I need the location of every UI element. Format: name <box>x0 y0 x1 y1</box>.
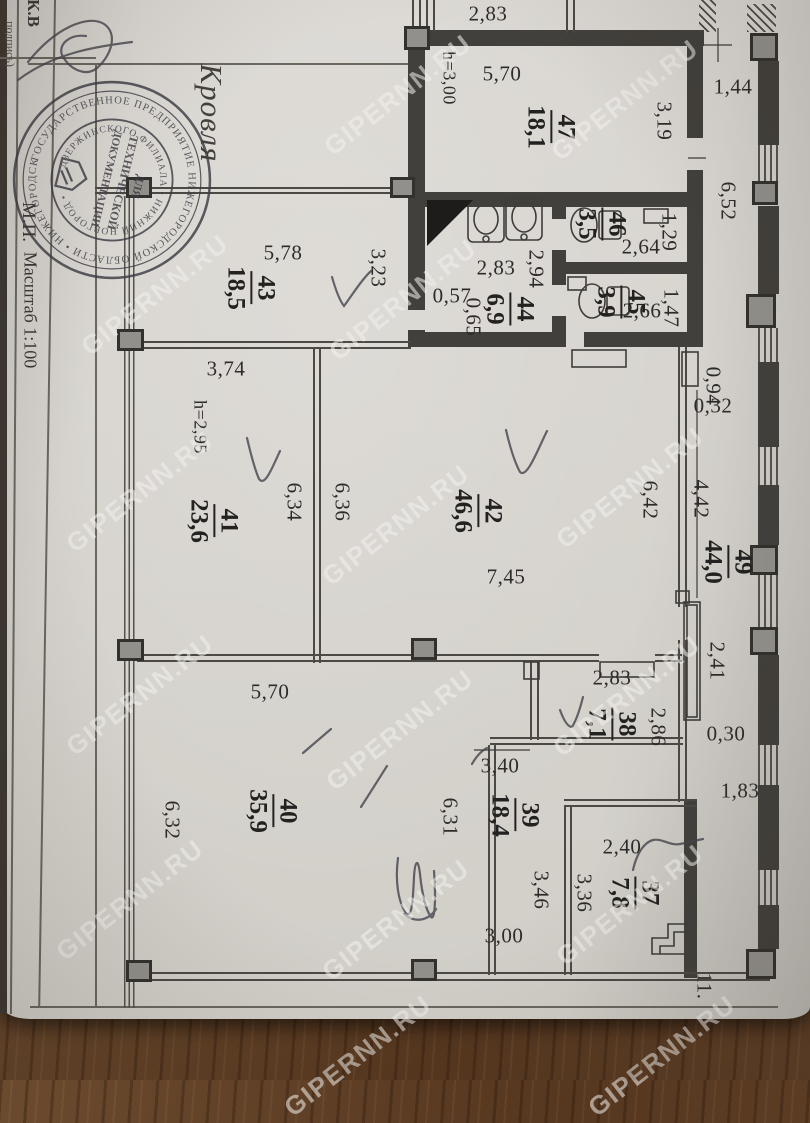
dimension-label: 3,36 <box>572 874 597 913</box>
dimension-label: 6,52 <box>716 182 741 221</box>
scale-label: Масштаб 1:100 <box>20 252 41 369</box>
room-label-46: 463,5 <box>572 208 631 241</box>
room-area: 35,9 <box>243 789 273 833</box>
dimension-label: 2,94 <box>524 250 549 289</box>
dimension-label: 3,19 <box>652 102 677 141</box>
room-area: 3,9 <box>591 286 621 317</box>
wall <box>552 262 703 274</box>
exterior-wall <box>758 785 779 870</box>
partition-wall <box>678 347 687 607</box>
wall <box>552 316 566 347</box>
dimension-label: 6,34 <box>282 483 307 522</box>
room-number: 49 <box>727 546 756 579</box>
underlying-page-edge <box>0 0 7 1014</box>
wall <box>684 800 697 978</box>
room-label-41: 4123,6 <box>184 499 243 543</box>
window <box>758 575 779 627</box>
wall <box>584 332 703 347</box>
column <box>411 638 437 660</box>
dimension-label: 4,42 <box>689 480 714 519</box>
column <box>404 26 430 50</box>
dimension-label: 2,86 <box>646 708 671 747</box>
photo-of-floor-plan-document: { "form": { "kv": "К.В", "signature_capt… <box>0 0 810 1080</box>
dimension-label: 6,36 <box>330 483 355 522</box>
dimension-label: 2,83 <box>469 2 508 27</box>
exterior-wall <box>758 206 779 294</box>
window <box>758 447 779 485</box>
dimension-label: 0,32 <box>694 394 733 419</box>
room-label-43: 4318,5 <box>221 266 280 310</box>
dimension-label: 7,45 <box>487 565 526 590</box>
signature-caption: подпись) <box>3 21 18 67</box>
room-number: 42 <box>477 495 506 528</box>
dimension-label: 3,23 <box>366 249 391 288</box>
dimension-label: 3,74 <box>207 357 246 382</box>
partition-wall <box>530 662 539 740</box>
column <box>750 33 778 61</box>
dimension-label: 1,44 <box>714 75 753 100</box>
wall-stub-hatch <box>566 0 580 33</box>
dimension-label: 5,70 <box>483 62 522 87</box>
form-mp-label: М.П. <box>17 202 39 242</box>
column <box>752 181 778 205</box>
room-area: 44,0 <box>698 540 728 584</box>
room-number: 41 <box>213 505 242 538</box>
dimension-label: 5,78 <box>264 241 303 266</box>
dimension-label: 2,83 <box>477 256 516 281</box>
roof-area-label: Кровля <box>193 64 229 163</box>
room-area: 3,5 <box>572 208 602 239</box>
room-number: 43 <box>250 272 279 305</box>
partition-wall <box>137 972 770 981</box>
exterior-wall <box>758 655 779 745</box>
room-label-45: 453,9 <box>591 286 650 319</box>
dimension-label: 1,47 <box>659 289 684 328</box>
window <box>758 745 779 785</box>
column <box>126 960 152 982</box>
room-label-40: 4035,9 <box>243 789 302 833</box>
window <box>758 870 779 905</box>
dimension-label: 3,40 <box>481 754 520 779</box>
column <box>746 294 776 328</box>
column <box>746 949 776 979</box>
dimension-label: 6,31 <box>438 798 463 837</box>
wall <box>552 207 566 219</box>
wall <box>687 207 703 347</box>
wall-stub-hatch <box>699 0 716 32</box>
room-number: 46 <box>601 208 630 241</box>
room-area: 6,9 <box>480 293 510 324</box>
wall-stub-hatch <box>747 4 776 32</box>
dimension-label: 3,46 <box>529 871 554 910</box>
room-number: 45 <box>620 286 649 319</box>
exterior-wall <box>758 362 779 447</box>
dimension-label: 2,40 <box>603 835 642 860</box>
partition-wall <box>678 662 687 802</box>
room-area: 18,5 <box>221 266 251 310</box>
exterior-wall <box>758 485 779 545</box>
dimension-label: 1,83 <box>721 779 760 804</box>
room-number: 40 <box>272 795 301 828</box>
dimension-label: 6,32 <box>160 801 185 840</box>
dimension-label: 0,30 <box>707 722 746 747</box>
room-area: 18,4 <box>485 793 515 837</box>
room-label-49: 4944,0 <box>698 540 757 584</box>
form-kv-label: К.В <box>23 0 43 27</box>
column <box>117 639 144 661</box>
room-area: 23,6 <box>184 499 214 543</box>
dimension-label: 5,70 <box>251 680 290 705</box>
dimension-label: 2,41 <box>705 642 730 681</box>
column <box>411 959 437 981</box>
dimension-label: 3,00 <box>485 924 524 949</box>
exterior-wall <box>758 905 779 949</box>
room-number: 44 <box>509 293 538 326</box>
column <box>750 627 778 655</box>
exterior-wall <box>758 61 779 145</box>
window <box>758 328 779 362</box>
column <box>390 177 415 198</box>
partition-wall <box>313 347 321 663</box>
room-label-44: 446,9 <box>480 293 539 326</box>
window <box>758 145 779 182</box>
room-number: 39 <box>514 799 543 832</box>
stamp-logo-icon <box>55 158 89 192</box>
room-label-39: 3918,4 <box>485 793 544 837</box>
wall <box>425 192 703 207</box>
